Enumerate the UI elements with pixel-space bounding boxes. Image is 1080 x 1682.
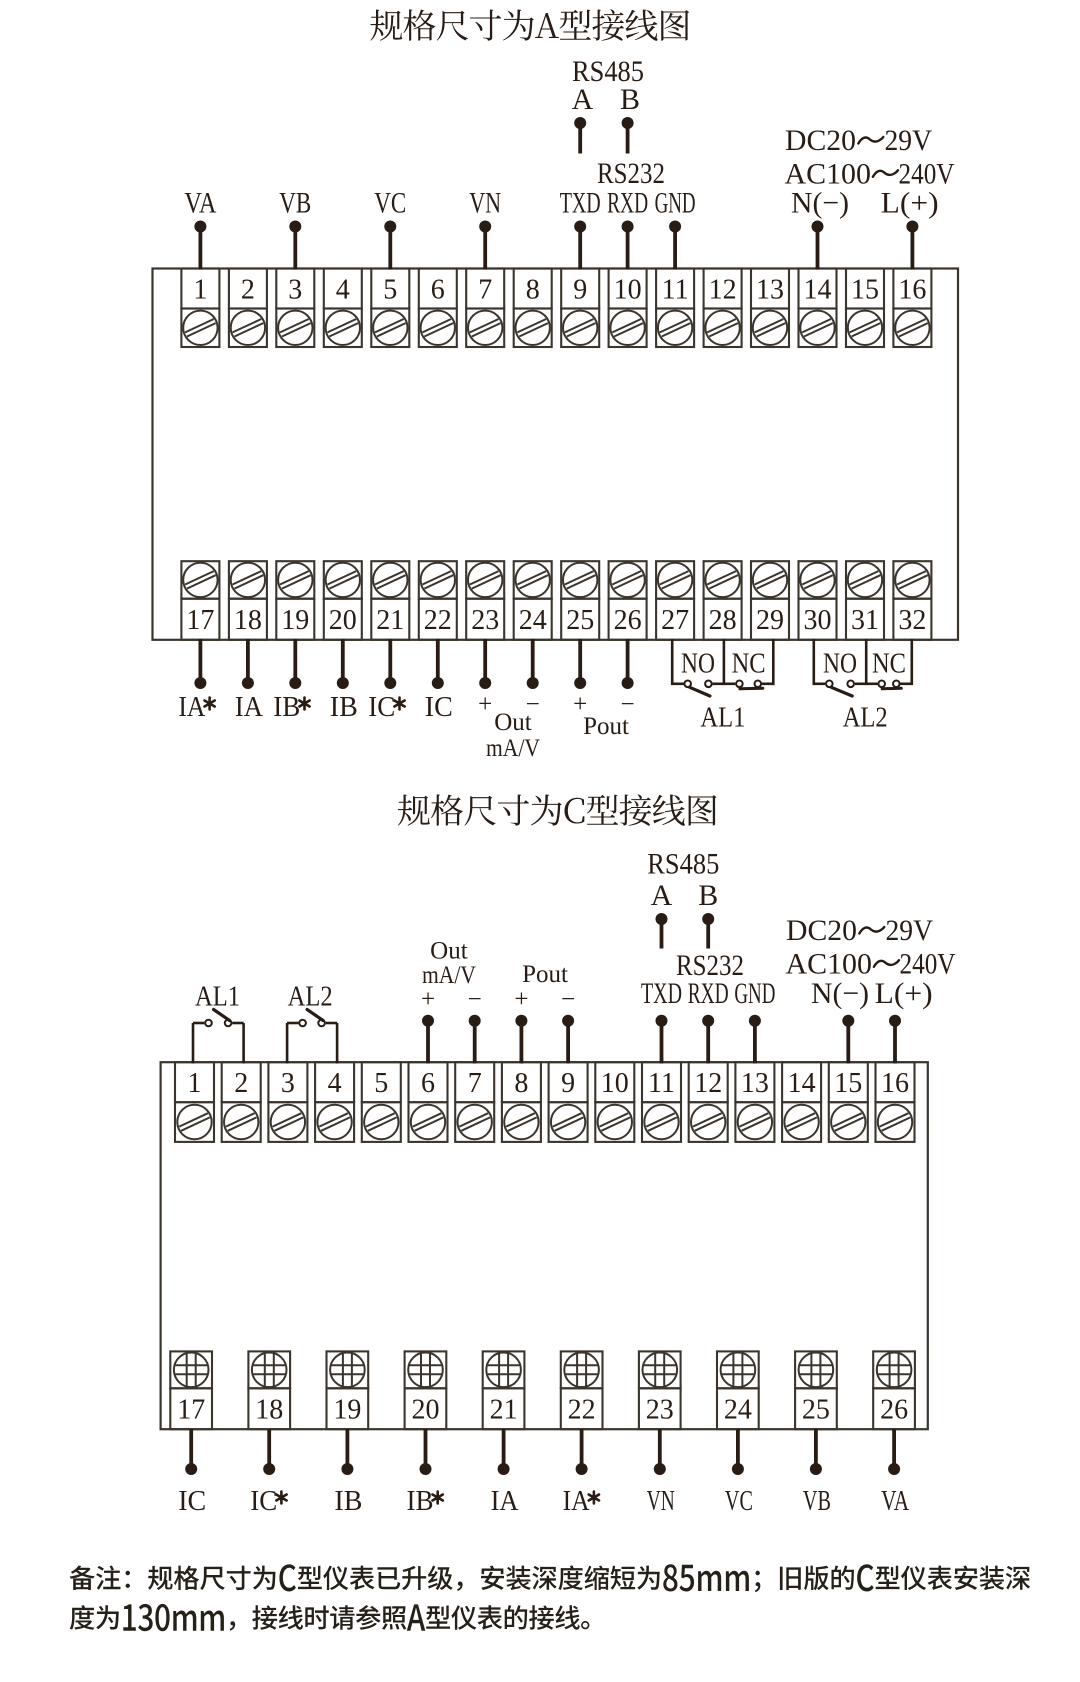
- svg-text:TXD: TXD: [560, 187, 601, 220]
- svg-text:IB: IB: [273, 691, 300, 723]
- svg-text:Pout: Pout: [522, 961, 568, 988]
- svg-text:3: 3: [281, 1068, 295, 1099]
- svg-text:AL2: AL2: [843, 703, 888, 734]
- svg-text:15: 15: [834, 1068, 862, 1099]
- svg-text:6: 6: [421, 1068, 435, 1099]
- svg-text:VN: VN: [469, 187, 501, 220]
- svg-text:DC20: DC20: [785, 124, 856, 157]
- svg-text:25: 25: [566, 605, 594, 636]
- svg-text:29V: 29V: [885, 124, 933, 157]
- svg-text:A: A: [651, 879, 673, 912]
- svg-text:19: 19: [333, 1394, 361, 1425]
- svg-text:22: 22: [424, 605, 452, 636]
- svg-text:11: 11: [662, 275, 689, 306]
- svg-text:29: 29: [756, 605, 784, 636]
- svg-text:AL2: AL2: [288, 982, 333, 1013]
- svg-text:23: 23: [471, 605, 499, 636]
- svg-text:5: 5: [383, 275, 397, 306]
- svg-text:1: 1: [188, 1068, 202, 1099]
- svg-text:3: 3: [288, 275, 302, 306]
- svg-text:L(+): L(+): [875, 977, 933, 1010]
- svg-text:31: 31: [851, 605, 879, 636]
- svg-text:RXD: RXD: [607, 187, 648, 220]
- svg-text:28: 28: [709, 605, 737, 636]
- svg-text:VC: VC: [374, 187, 406, 220]
- svg-text:8: 8: [514, 1068, 528, 1099]
- svg-text:16: 16: [898, 275, 926, 306]
- svg-text:mA/V: mA/V: [422, 962, 476, 989]
- svg-text:22: 22: [568, 1394, 596, 1425]
- svg-text:15: 15: [851, 275, 879, 306]
- svg-text:B: B: [698, 879, 718, 912]
- svg-text:mA/V: mA/V: [486, 735, 540, 762]
- svg-text:6: 6: [431, 275, 445, 306]
- svg-text:Out: Out: [494, 709, 532, 736]
- svg-text:VC: VC: [725, 1485, 753, 1517]
- svg-text:4: 4: [328, 1068, 342, 1099]
- svg-text:20: 20: [412, 1394, 440, 1425]
- svg-text:IC: IC: [250, 1485, 277, 1517]
- svg-text:18: 18: [255, 1394, 283, 1425]
- svg-text:9: 9: [573, 275, 587, 306]
- svg-text:21: 21: [490, 1394, 518, 1425]
- svg-text:24: 24: [519, 605, 547, 636]
- svg-text:10: 10: [601, 1068, 629, 1099]
- svg-text:25: 25: [802, 1394, 830, 1425]
- svg-text:20: 20: [329, 605, 357, 636]
- svg-text:Out: Out: [430, 938, 468, 965]
- svg-text:IC: IC: [178, 1485, 206, 1517]
- svg-text:240V: 240V: [900, 947, 956, 980]
- svg-text:23: 23: [646, 1394, 674, 1425]
- svg-text:2: 2: [241, 275, 255, 306]
- svg-text:32: 32: [898, 605, 926, 636]
- svg-text:10: 10: [614, 275, 642, 306]
- svg-text:RS232: RS232: [597, 157, 665, 190]
- svg-text:9: 9: [561, 1068, 575, 1099]
- svg-text:29V: 29V: [886, 914, 934, 947]
- svg-text:+: +: [478, 691, 492, 718]
- svg-text:17: 17: [186, 605, 214, 636]
- svg-text:N(−): N(−): [791, 187, 849, 220]
- svg-text:5: 5: [374, 1068, 388, 1099]
- svg-text:B: B: [620, 83, 640, 116]
- svg-text:VA: VA: [881, 1485, 909, 1517]
- svg-text:7: 7: [468, 1068, 482, 1099]
- svg-text:IA: IA: [235, 691, 263, 723]
- svg-text:RXD: RXD: [688, 977, 729, 1010]
- svg-text:11: 11: [648, 1068, 675, 1099]
- svg-text:27: 27: [661, 605, 689, 636]
- svg-text:RS485: RS485: [647, 847, 719, 880]
- svg-text:19: 19: [281, 605, 309, 636]
- svg-text:VB: VB: [279, 187, 311, 220]
- svg-text:14: 14: [804, 275, 832, 306]
- svg-text:2: 2: [234, 1068, 248, 1099]
- svg-text:8: 8: [526, 275, 540, 306]
- svg-text:26: 26: [614, 605, 642, 636]
- svg-text:L(+): L(+): [881, 187, 939, 220]
- svg-text:IA: IA: [491, 1485, 519, 1517]
- svg-text:NC: NC: [872, 648, 906, 680]
- svg-text:GND: GND: [734, 977, 775, 1010]
- svg-text:+: +: [514, 986, 528, 1013]
- svg-text:N(−): N(−): [811, 977, 869, 1010]
- svg-text:+: +: [421, 986, 435, 1013]
- svg-text:AC100: AC100: [785, 157, 872, 190]
- svg-text:14: 14: [788, 1068, 816, 1099]
- svg-text:IB: IB: [407, 1485, 434, 1517]
- svg-text:4: 4: [336, 275, 350, 306]
- svg-text:24: 24: [724, 1394, 752, 1425]
- svg-text:AL1: AL1: [195, 982, 240, 1013]
- svg-text:17: 17: [177, 1394, 205, 1425]
- svg-text:12: 12: [694, 1068, 722, 1099]
- svg-text:IB: IB: [334, 1485, 362, 1517]
- svg-text:30: 30: [804, 605, 832, 636]
- svg-text:26: 26: [880, 1394, 908, 1425]
- svg-text:VB: VB: [803, 1485, 831, 1517]
- svg-text:NC: NC: [732, 648, 766, 680]
- svg-text:DC20: DC20: [786, 914, 857, 947]
- svg-text:IB: IB: [330, 691, 358, 723]
- svg-text:16: 16: [881, 1068, 909, 1099]
- svg-text:GND: GND: [655, 187, 696, 220]
- svg-text:NO: NO: [823, 648, 857, 680]
- svg-text:7: 7: [478, 275, 492, 306]
- svg-text:IC: IC: [368, 691, 395, 723]
- svg-text:TXD: TXD: [641, 977, 682, 1010]
- svg-text:IA: IA: [563, 1485, 590, 1517]
- svg-text:VN: VN: [647, 1485, 675, 1517]
- svg-text:IA: IA: [178, 691, 205, 723]
- svg-text:13: 13: [741, 1068, 769, 1099]
- svg-text:−: −: [468, 986, 482, 1013]
- svg-text:21: 21: [376, 605, 404, 636]
- svg-text:AL1: AL1: [700, 703, 745, 734]
- svg-text:A: A: [572, 83, 594, 116]
- svg-text:VA: VA: [184, 187, 216, 220]
- svg-text:13: 13: [756, 275, 784, 306]
- svg-text:240V: 240V: [899, 157, 955, 190]
- svg-text:−: −: [561, 986, 575, 1013]
- svg-text:18: 18: [234, 605, 262, 636]
- svg-text:AC100: AC100: [786, 947, 873, 980]
- svg-text:NO: NO: [681, 648, 715, 680]
- svg-text:IC: IC: [425, 691, 453, 723]
- svg-text:1: 1: [193, 275, 207, 306]
- svg-text:12: 12: [709, 275, 737, 306]
- svg-text:Pout: Pout: [583, 713, 629, 740]
